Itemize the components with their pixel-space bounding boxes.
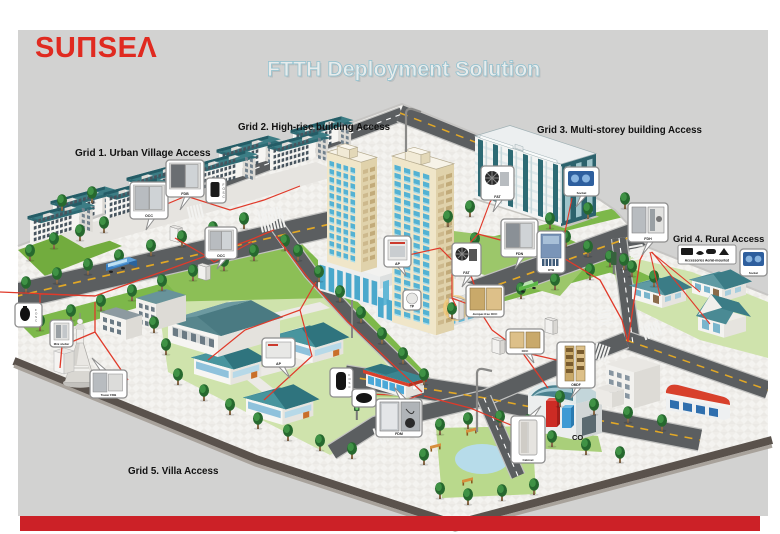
svg-text:Cabinet: Cabinet: [522, 458, 533, 462]
svg-text:Mini shelter: Mini shelter: [54, 342, 70, 346]
svg-text:C: C: [349, 385, 351, 389]
svg-text:OCC: OCC: [522, 349, 530, 353]
svg-text:AP: AP: [395, 262, 401, 266]
svg-text:Socket: Socket: [749, 271, 758, 275]
svg-text:OCC: OCC: [217, 254, 225, 258]
svg-text:Tower FDB: Tower FDB: [101, 393, 117, 397]
svg-text:SUΠSEΛ: SUΠSEΛ: [35, 32, 157, 64]
svg-text:Grid 5. Villa Access: Grid 5. Villa Access: [128, 466, 219, 477]
svg-text:TP: TP: [410, 305, 415, 309]
svg-text:FAT: FAT: [463, 271, 470, 275]
svg-text:CO: CO: [572, 433, 583, 442]
svg-text:FDM: FDM: [395, 432, 403, 436]
svg-text:Grid 4. Rural Access: Grid 4. Rural Access: [673, 233, 764, 244]
svg-text:FDB: FDB: [181, 192, 189, 196]
svg-text:Grid 1. Urban Village Access: Grid 1. Urban Village Access: [75, 148, 211, 159]
svg-text:Socket: Socket: [577, 191, 587, 195]
svg-text:FDH: FDH: [644, 237, 652, 241]
svg-text:AP: AP: [276, 362, 282, 366]
svg-text:OMDF: OMDF: [571, 383, 580, 387]
svg-text:OTB: OTB: [548, 268, 555, 272]
svg-text:FDN: FDN: [516, 252, 524, 256]
svg-text:FAT: FAT: [494, 195, 501, 199]
svg-text:FTTH Deployment Solution: FTTH Deployment Solution: [267, 57, 540, 81]
svg-text:Grid 2. High-rise building Acc: Grid 2. High-rise building Access: [238, 122, 390, 133]
svg-text:Jumper-free OCC: Jumper-free OCC: [473, 312, 499, 316]
svg-text:OCC: OCC: [145, 214, 153, 218]
svg-text:Grid 3. Multi-storey building: Grid 3. Multi-storey building Access: [537, 125, 702, 136]
svg-text:Accessories Aerial-mounted: Accessories Aerial-mounted: [685, 259, 729, 263]
